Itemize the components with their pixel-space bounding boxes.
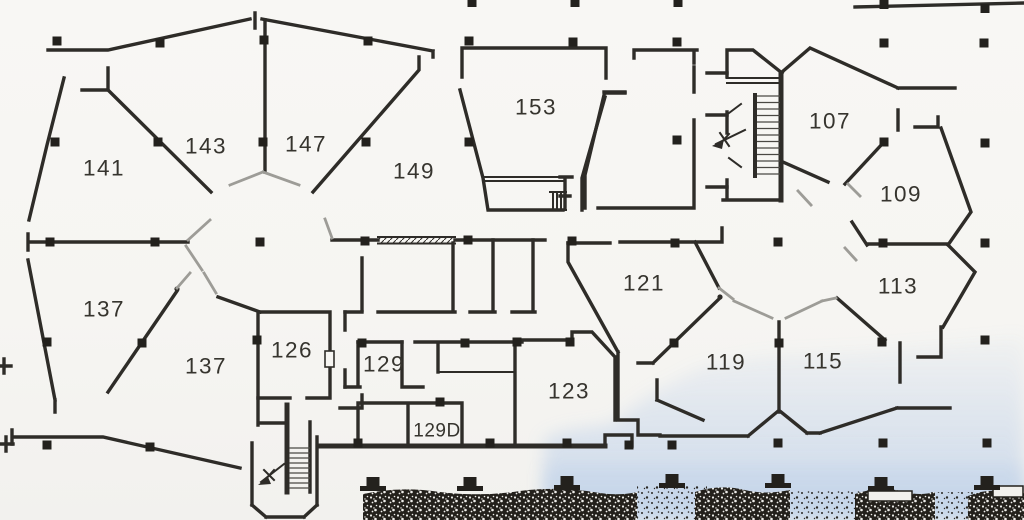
floor-plan-svg: 1411431471491531071091131211191151371371… <box>0 0 1024 520</box>
door-opening-lines <box>177 172 860 318</box>
stairwell-lower-left-icon <box>252 398 317 517</box>
floor-plan-page: 1411431471491531071091131211191151371371… <box>0 0 1024 520</box>
room-label-126: 126 <box>271 338 313 363</box>
room-label-129: 129 <box>363 352 405 377</box>
room-label-153: 153 <box>515 95 557 120</box>
room-label-137: 137 <box>83 297 125 322</box>
room-label-137: 137 <box>185 354 227 379</box>
room-label-147: 147 <box>285 132 327 157</box>
room-label-107: 107 <box>809 109 851 134</box>
room-label-115: 115 <box>803 349 843 374</box>
planter-box <box>868 491 912 501</box>
room-label-141: 141 <box>83 156 125 181</box>
room-label-109: 109 <box>880 182 922 207</box>
stairwell-upper-right-icon <box>707 50 782 200</box>
room-label-143: 143 <box>185 134 227 159</box>
door-icon <box>325 351 334 367</box>
room-label-129D: 129D <box>413 421 460 442</box>
room-153-walls <box>460 48 697 210</box>
room-label-113: 113 <box>878 274 918 299</box>
room-label-123: 123 <box>548 379 590 404</box>
room-label-121: 121 <box>623 271 665 296</box>
interior-walls-west-wing <box>82 20 419 392</box>
room-label-119: 119 <box>706 350 746 375</box>
room-label-149: 149 <box>393 159 435 184</box>
